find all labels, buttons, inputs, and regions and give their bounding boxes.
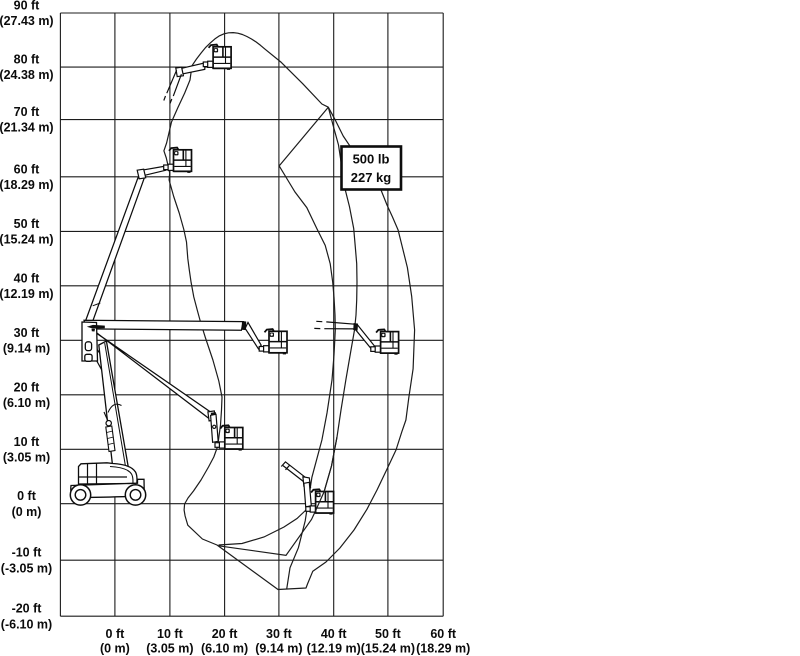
svg-text:70 ft(21.34 m): 70 ft(21.34 m) (0, 105, 54, 135)
svg-text:500 lb: 500 lb (353, 152, 390, 167)
svg-text:20 ft(6.10 m): 20 ft(6.10 m) (3, 380, 50, 410)
svg-text:50 ft(15.24 m): 50 ft(15.24 m) (361, 627, 415, 656)
svg-text:10 ft(3.05 m): 10 ft(3.05 m) (146, 627, 193, 656)
svg-text:60 ft(18.29 m): 60 ft(18.29 m) (416, 627, 470, 656)
svg-text:50 ft(15.24 m): 50 ft(15.24 m) (0, 217, 54, 247)
svg-text:60 ft(18.29 m): 60 ft(18.29 m) (0, 162, 54, 192)
svg-text:30 ft(9.14 m): 30 ft(9.14 m) (255, 627, 302, 656)
svg-text:10 ft(3.05 m): 10 ft(3.05 m) (3, 435, 50, 465)
svg-text:-20 ft(-6.10 m): -20 ft(-6.10 m) (1, 602, 52, 632)
svg-text:40 ft(12.19 m): 40 ft(12.19 m) (307, 627, 361, 656)
svg-text:0 ft(0 m): 0 ft(0 m) (100, 627, 130, 656)
svg-text:80 ft(24.38 m): 80 ft(24.38 m) (0, 53, 54, 83)
svg-text:227 kg: 227 kg (351, 170, 392, 185)
svg-text:90 ft(27.43 m): 90 ft(27.43 m) (0, 0, 54, 28)
svg-text:-10 ft(-3.05 m): -10 ft(-3.05 m) (1, 546, 52, 576)
svg-text:20 ft(6.10 m): 20 ft(6.10 m) (201, 627, 248, 656)
svg-text:40 ft(12.19 m): 40 ft(12.19 m) (0, 271, 54, 301)
svg-text:0 ft(0 m): 0 ft(0 m) (12, 489, 42, 519)
svg-text:30 ft(9.14 m): 30 ft(9.14 m) (3, 326, 50, 356)
